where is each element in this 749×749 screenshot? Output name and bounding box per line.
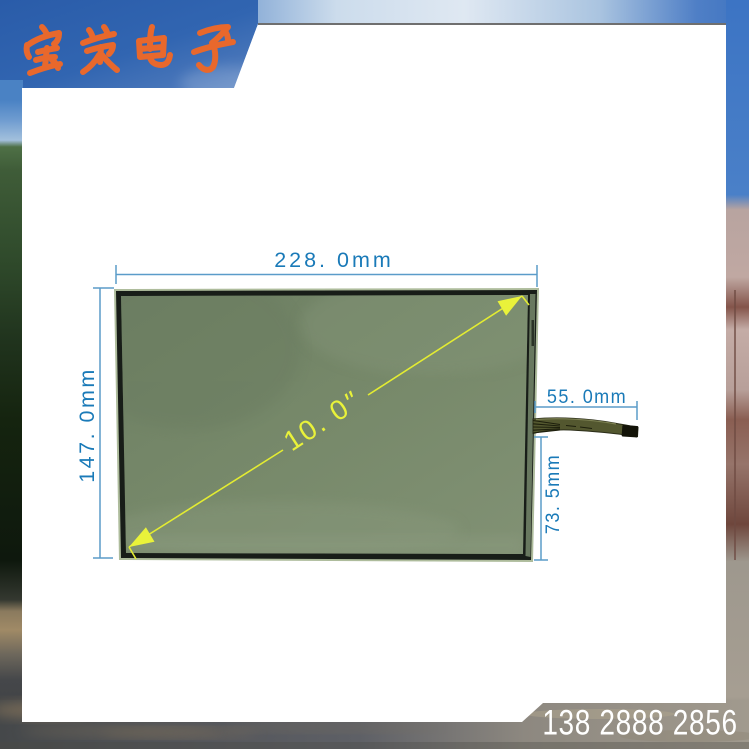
svg-text:228. 0mm: 228. 0mm [274, 248, 394, 272]
svg-text:55. 0mm: 55. 0mm [547, 386, 627, 408]
svg-text:138 2888 2856: 138 2888 2856 [542, 702, 737, 742]
svg-text:73. 5mm: 73. 5mm [542, 454, 564, 534]
svg-text:147. 0mm: 147. 0mm [75, 367, 99, 483]
